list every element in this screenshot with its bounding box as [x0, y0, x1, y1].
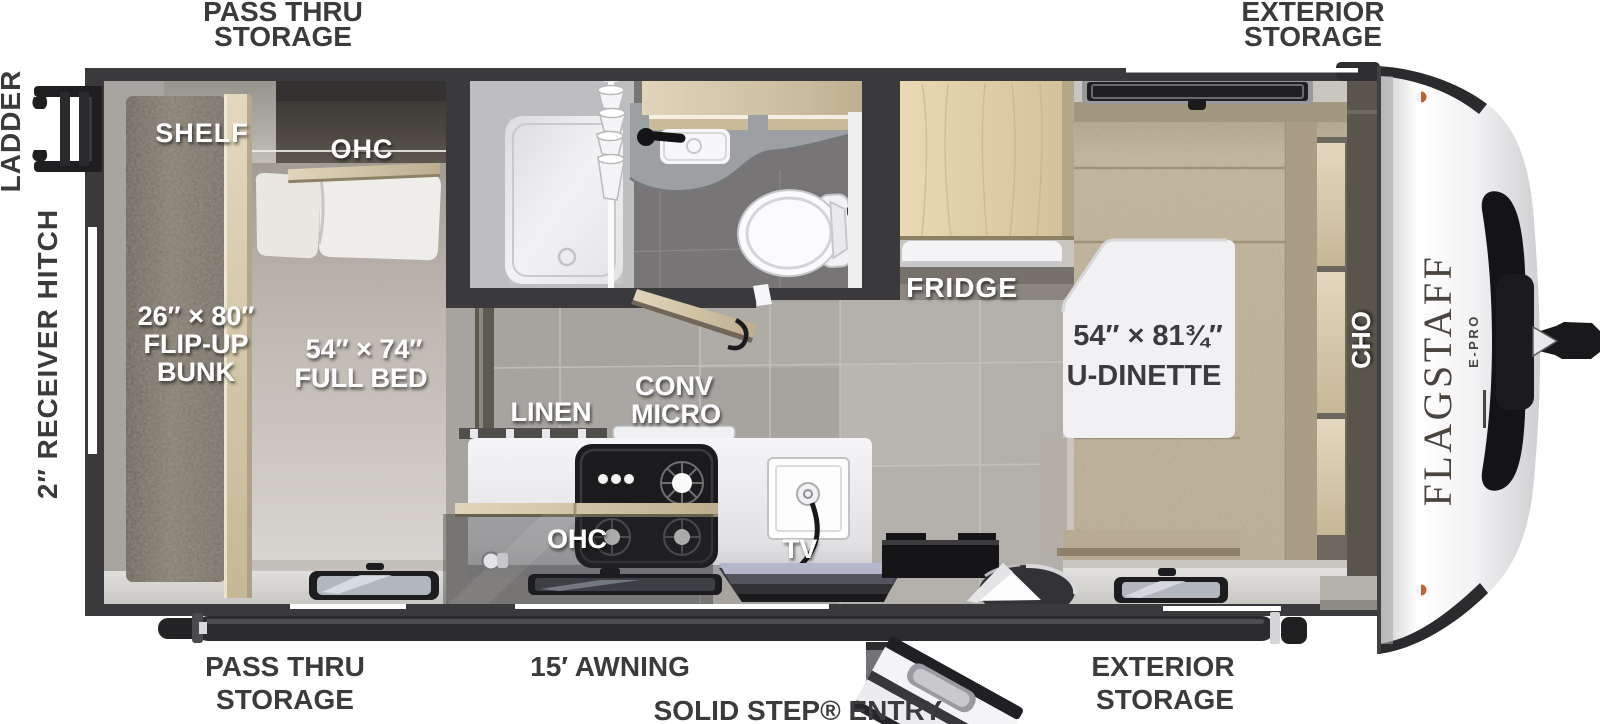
svg-text:LINEN: LINEN [511, 397, 592, 427]
svg-text:26″ × 80″: 26″ × 80″ [138, 301, 255, 331]
svg-text:15′ AWNING: 15′ AWNING [530, 651, 690, 682]
svg-text:TV: TV [783, 534, 818, 564]
svg-text:FLAGSTAFF: FLAGSTAFF [1415, 254, 1460, 507]
svg-text:2″ RECEIVER HITCH: 2″ RECEIVER HITCH [32, 209, 63, 499]
svg-text:E-PRO: E-PRO [1466, 314, 1481, 368]
svg-text:CHO: CHO [1346, 311, 1376, 369]
svg-text:STORAGE: STORAGE [1096, 684, 1234, 715]
svg-text:LADDER: LADDER [0, 70, 26, 193]
svg-text:OHC: OHC [331, 134, 394, 164]
svg-text:STORAGE: STORAGE [1244, 21, 1382, 52]
svg-text:SOLID STEP® ENTRY: SOLID STEP® ENTRY [654, 695, 943, 724]
svg-text:STORAGE: STORAGE [214, 21, 352, 52]
svg-text:PASS THRU: PASS THRU [205, 651, 365, 682]
svg-text:EXTERIOR: EXTERIOR [1091, 651, 1234, 682]
svg-text:CONV: CONV [635, 371, 713, 401]
svg-text:FLIP-UP: FLIP-UP [144, 329, 249, 359]
svg-text:FRIDGE: FRIDGE [906, 272, 1018, 303]
svg-text:U-DINETTE: U-DINETTE [1067, 360, 1222, 392]
svg-text:MICRO: MICRO [631, 399, 721, 429]
svg-text:54″ × 81¾″: 54″ × 81¾″ [1073, 320, 1223, 352]
svg-text:BUNK: BUNK [157, 357, 235, 387]
svg-text:54″ × 74″: 54″ × 74″ [306, 334, 423, 364]
svg-text:OHC: OHC [547, 524, 607, 554]
svg-text:SHELF: SHELF [155, 118, 249, 148]
svg-text:FULL BED: FULL BED [295, 363, 428, 393]
svg-text:STORAGE: STORAGE [216, 684, 354, 715]
